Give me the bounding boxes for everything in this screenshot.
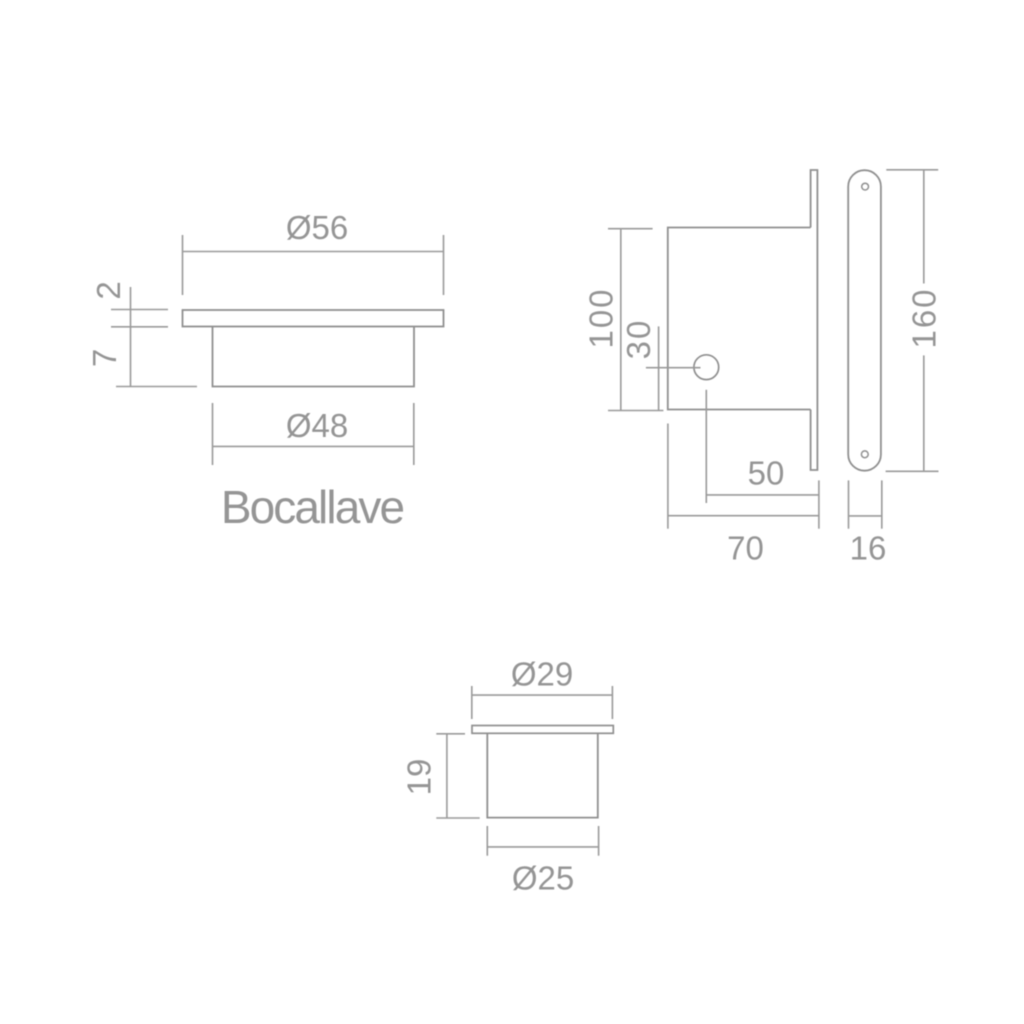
svg-text:160: 160 bbox=[906, 287, 943, 348]
svg-text:70: 70 bbox=[727, 530, 764, 567]
svg-text:16: 16 bbox=[850, 530, 887, 567]
svg-text:50: 50 bbox=[748, 455, 785, 492]
svg-text:2: 2 bbox=[90, 281, 127, 299]
svg-text:Bocallave: Bocallave bbox=[221, 481, 404, 533]
svg-text:Ø25: Ø25 bbox=[512, 860, 574, 897]
svg-text:7: 7 bbox=[86, 349, 123, 367]
svg-text:19: 19 bbox=[401, 759, 438, 796]
svg-text:30: 30 bbox=[620, 319, 657, 360]
svg-text:Ø56: Ø56 bbox=[286, 209, 348, 246]
svg-text:Ø48: Ø48 bbox=[286, 407, 348, 444]
svg-text:100: 100 bbox=[583, 287, 620, 348]
svg-text:Ø29: Ø29 bbox=[511, 656, 573, 693]
